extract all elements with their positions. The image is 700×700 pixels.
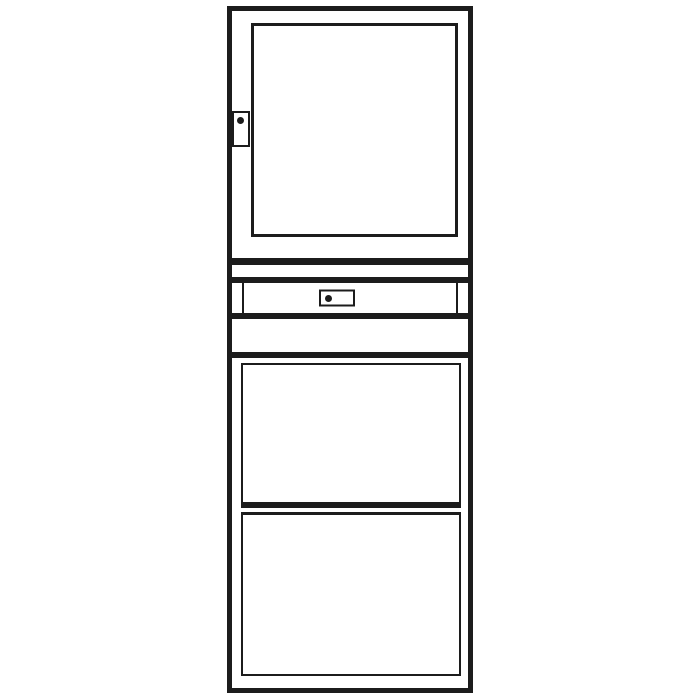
door-latch bbox=[232, 111, 250, 147]
lower-cabinet-section bbox=[232, 358, 468, 688]
cabinet-outline bbox=[227, 6, 473, 693]
latch-knob-icon bbox=[237, 117, 244, 124]
lower-cabinet-lower-panel bbox=[241, 512, 461, 676]
drawer-front-right-edge bbox=[456, 283, 458, 313]
lower-cabinet-upper-panel bbox=[241, 363, 461, 508]
drawer-handle bbox=[319, 290, 355, 307]
spacer-band-upper bbox=[232, 265, 468, 277]
handle-knob-icon bbox=[325, 295, 332, 302]
upper-door-inner-panel bbox=[251, 23, 458, 237]
upper-door-section bbox=[232, 11, 468, 258]
spacer-band-lower bbox=[232, 319, 468, 352]
horizontal-divider-1 bbox=[232, 258, 468, 265]
drawer-section bbox=[232, 283, 468, 313]
figure-canvas bbox=[0, 0, 700, 700]
drawer-front-left-edge bbox=[242, 283, 244, 313]
